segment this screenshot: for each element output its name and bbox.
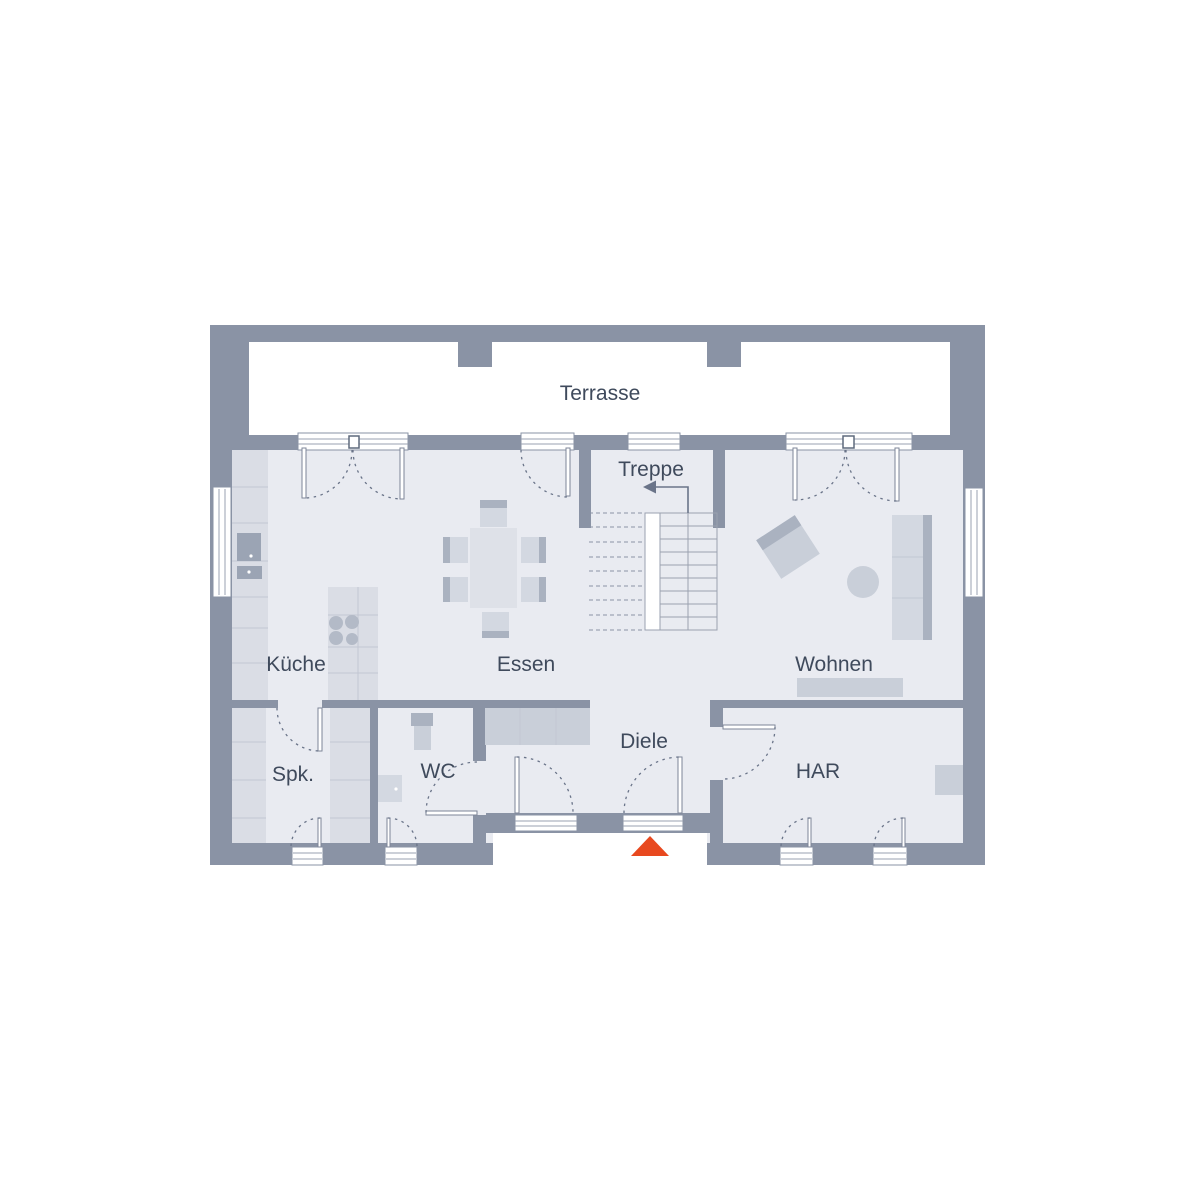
mid-wall xyxy=(322,700,590,708)
label-utility: HAR xyxy=(796,760,840,783)
door-motor-icon xyxy=(843,436,854,448)
label-living: Wohnen xyxy=(795,653,873,676)
terrace-pillar-left xyxy=(458,342,492,367)
floor-plan-canvas: Terrasse Treppe Küche Essen Wohnen Diele… xyxy=(0,0,1200,1200)
living-window xyxy=(965,488,983,597)
chair-back-right-1 xyxy=(538,537,546,563)
washbasin xyxy=(378,775,402,802)
toilet-tank xyxy=(411,713,433,726)
pantry-shelf-left xyxy=(232,708,266,843)
stair-window xyxy=(628,433,680,450)
wc-window xyxy=(385,847,417,865)
terrace-single-door xyxy=(521,433,574,450)
wc-right-wall-lower xyxy=(473,815,486,843)
chair-top xyxy=(480,508,507,527)
chair-left-2 xyxy=(450,577,468,602)
hall-utility-divider-lower xyxy=(710,780,723,843)
chair-back-left-2 xyxy=(443,577,451,602)
washbasin-drain-dot xyxy=(394,787,397,790)
side-table xyxy=(847,566,879,598)
label-pantry: Spk. xyxy=(272,763,314,786)
hall-utility-divider-upper xyxy=(710,700,723,727)
utility-appliance xyxy=(935,765,963,795)
pantry-shelf-right xyxy=(330,708,370,843)
floor-plan-drawing: Terrasse Treppe Küche Essen Wohnen Diele… xyxy=(0,0,1200,1200)
chair-right-2 xyxy=(521,577,539,602)
stair-left-wall xyxy=(579,450,591,528)
label-terrace: Terrasse xyxy=(560,382,641,405)
label-wc: WC xyxy=(421,760,456,783)
sink-drain-dot xyxy=(249,554,252,557)
toilet-bowl xyxy=(414,726,431,750)
utility-top-wall xyxy=(723,700,963,708)
label-stairs: Treppe xyxy=(618,458,684,481)
sofa-backrest xyxy=(923,515,932,640)
pantry-window xyxy=(292,847,323,865)
stair-spine xyxy=(645,513,660,630)
chair-back-left-1 xyxy=(443,537,451,563)
terrace-pillar-right xyxy=(707,342,741,367)
kitchen-window xyxy=(213,487,231,597)
wc-right-wall-upper xyxy=(473,700,486,761)
hall-furniture xyxy=(485,708,590,745)
label-hallway: Diele xyxy=(620,730,668,753)
entrance-porch-recess xyxy=(493,833,707,878)
door-motor-icon xyxy=(349,436,359,448)
chair-back-right-2 xyxy=(538,577,546,602)
hall-wardrobe xyxy=(485,708,590,745)
chair-bottom xyxy=(482,612,509,631)
drawer-knob-dot xyxy=(247,570,250,573)
sideboard xyxy=(797,678,903,697)
label-kitchen: Küche xyxy=(266,653,326,676)
kitchen-sink xyxy=(237,533,261,561)
front-door xyxy=(623,815,683,831)
dining-table xyxy=(470,528,517,608)
pantry-top-wall xyxy=(232,700,278,708)
utility-window-1 xyxy=(780,847,813,865)
pantry-wc-divider xyxy=(370,708,378,843)
chair-left-1 xyxy=(450,537,468,563)
chair-right-1 xyxy=(521,537,539,563)
stair-right-wall xyxy=(713,450,725,528)
label-dining: Essen xyxy=(497,653,555,676)
sofa-seat xyxy=(892,515,923,640)
hall-terrace-door xyxy=(515,815,577,831)
utility-window-2 xyxy=(873,847,907,865)
